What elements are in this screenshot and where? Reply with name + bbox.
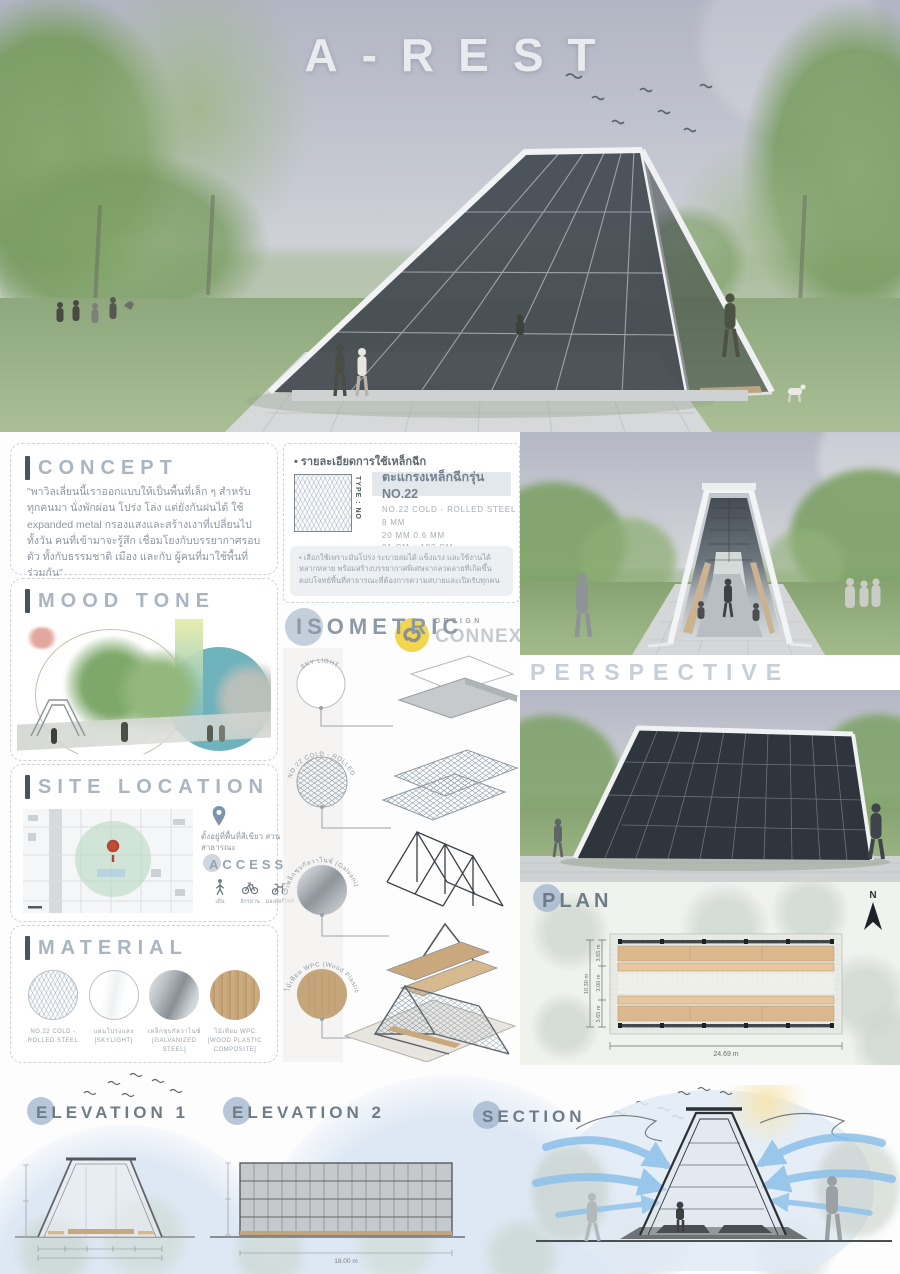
perspective-band: PERSPECTIVE: [520, 655, 900, 690]
elevation2-dim-width: 18.00 m: [334, 1258, 358, 1265]
hero-render: A-REST: [0, 0, 900, 432]
site-caption: ตั้งอยู่ที่พื้นที่สีเขียว สวนสาธารณะ: [201, 831, 283, 853]
mood-tone-collage: [17, 619, 271, 754]
title-bar: [25, 936, 30, 960]
location-pin-icon: [211, 805, 227, 827]
north-label: N: [869, 890, 876, 901]
mesh-swatch: [28, 970, 78, 1020]
spec-line: NO.22 COLD - ROLLED STEEL 8 MM: [382, 504, 519, 530]
site-location-title-row: SITE LOCATION: [25, 775, 277, 799]
access-label: เดิน: [215, 898, 224, 906]
plan-dim-left-total: 10.30 m: [584, 974, 590, 995]
plan-dim-left-top: 3.65 m: [596, 944, 602, 961]
material-item: แผ่นโปร่งแสง [SKYLIGHT]: [86, 970, 142, 1055]
collage-figure: [51, 728, 57, 744]
walk-icon: [211, 878, 229, 896]
collage-figure: [207, 725, 213, 742]
mesh-model-bar: ตะแกรงเหล็กฉีกรุ่น NO.22: [372, 472, 511, 496]
site-map: [23, 809, 193, 913]
material-label: ไม้เทียม WPC [WOOD PLASTIC COMPOSITE]: [207, 1028, 263, 1055]
presentation-board: A-REST CONCEPT "พาวิลเลี่ยนนี้เราออกแบบใ…: [0, 0, 900, 1274]
plan-dim-left-mid: 3.00 m: [596, 974, 602, 991]
material-title-row: MATERIAL: [25, 936, 277, 960]
plan-drawing: 24.69 m 3.65 m 3.00 m 3.65 m 10.30 m: [572, 924, 882, 1062]
mood-tone-panel: MOOD TONE: [10, 578, 278, 761]
section-title: SECTION: [482, 1107, 586, 1126]
title-bar: [25, 589, 30, 613]
birds-icon: [78, 1067, 188, 1107]
concept-body: "พาวิลเลี่ยนนี้เราออกแบบให้เป็นพื้นที่เล…: [27, 484, 261, 582]
material-item: NO.22 COLD - ROLLED STEEL: [25, 970, 81, 1055]
galvanized-swatch: [149, 970, 199, 1020]
access-label: จักรยาน: [240, 898, 260, 906]
material-item: ไม้เทียม WPC [WOOD PLASTIC COMPOSITE]: [207, 970, 263, 1055]
isometric-title-wrap: ISOMETRIC: [296, 614, 463, 640]
perspective-title: PERSPECTIVE: [530, 659, 790, 686]
bullet: •: [294, 456, 298, 468]
steel-detail-panel: • รายละเอียดการใช้เหล็กฉีก TYPE : NO ตะแ…: [283, 443, 520, 603]
collage-figure: [219, 725, 225, 742]
material-panel: MATERIAL NO.22 COLD - ROLLED STEEL แผ่นโ…: [10, 925, 278, 1063]
spec-line: 20 MM 0.6 MM: [382, 530, 519, 543]
material-swatches: NO.22 COLD - ROLLED STEEL แผ่นโปร่งแสง […: [11, 970, 277, 1055]
access-mode-walk: เดิน: [209, 878, 231, 906]
concept-panel: CONCEPT "พาวิลเลี่ยนนี้เราออกแบบให้เป็นพ…: [10, 443, 278, 575]
elevation2-title: ELEVATION 2: [232, 1103, 385, 1122]
page-title: A-REST: [0, 28, 900, 82]
isometric-title: ISOMETRIC: [296, 614, 463, 639]
elevation1-drawing: [10, 1137, 200, 1269]
collage-red-cloud: [25, 627, 59, 649]
material-label: NO.22 COLD - ROLLED STEEL: [25, 1028, 81, 1046]
mesh-type-label: TYPE : NO: [354, 476, 361, 520]
access-title: ACCESS: [209, 857, 321, 872]
concept-title: CONCEPT: [38, 457, 178, 480]
isometric-exploded-diagram: SKY LIGHT NO.22 COLD - ROLLED STEEL เหล็…: [283, 648, 520, 1062]
mesh-note-text: เลือกใช้เพราะมันโปร่ง ระบายลมได้ แข็งแรง…: [299, 553, 500, 585]
material-item: เหล็กชุบกัลวาไนซ์ [GALVANIZED STEEL]: [146, 970, 202, 1055]
plan-dim-width: 24.69 m: [713, 1051, 738, 1058]
elevation2-drawing: 18.00 m: [200, 1147, 470, 1269]
material-title: MATERIAL: [38, 937, 188, 960]
bicycle-icon: [241, 878, 259, 896]
elevation1-title: ELEVATION 1: [36, 1103, 189, 1122]
wood-swatch: [210, 970, 260, 1020]
title-bar: [25, 456, 30, 480]
perspective-render-2: [520, 690, 900, 882]
material-label: แผ่นโปร่งแสง [SKYLIGHT]: [86, 1028, 142, 1046]
plan-section: PLAN N: [520, 882, 900, 1065]
mood-tone-title-row: MOOD TONE: [25, 589, 277, 613]
collage-pavilion-sketch: [25, 692, 95, 740]
drawings-band: ELEVATION 1 ELEVATION 2 SECTION: [0, 1065, 900, 1274]
site-location-panel: SITE LOCATION ตั้งอยู่ที่พื้นที่สีเขียว …: [10, 764, 278, 922]
perspective-render-1: [520, 432, 900, 655]
skylight-swatch: [89, 970, 139, 1020]
mesh-note: • เลือกใช้เพราะมันโปร่ง ระบายลมได้ แข็งแ…: [290, 546, 513, 596]
access-mode-bicycle: จักรยาน: [239, 878, 261, 906]
title-bar: [25, 775, 30, 799]
collage-figure: [121, 722, 128, 742]
site-location-title: SITE LOCATION: [38, 776, 269, 799]
concept-title-row: CONCEPT: [25, 456, 277, 480]
plan-title: PLAN: [542, 890, 612, 912]
mood-tone-title: MOOD TONE: [38, 590, 215, 613]
material-label: เหล็กชุบกัลวาไนซ์ [GALVANIZED STEEL]: [146, 1028, 202, 1055]
plan-dim-left-bottom: 3.65 m: [596, 1005, 602, 1022]
mesh-sample-image: [294, 474, 352, 532]
